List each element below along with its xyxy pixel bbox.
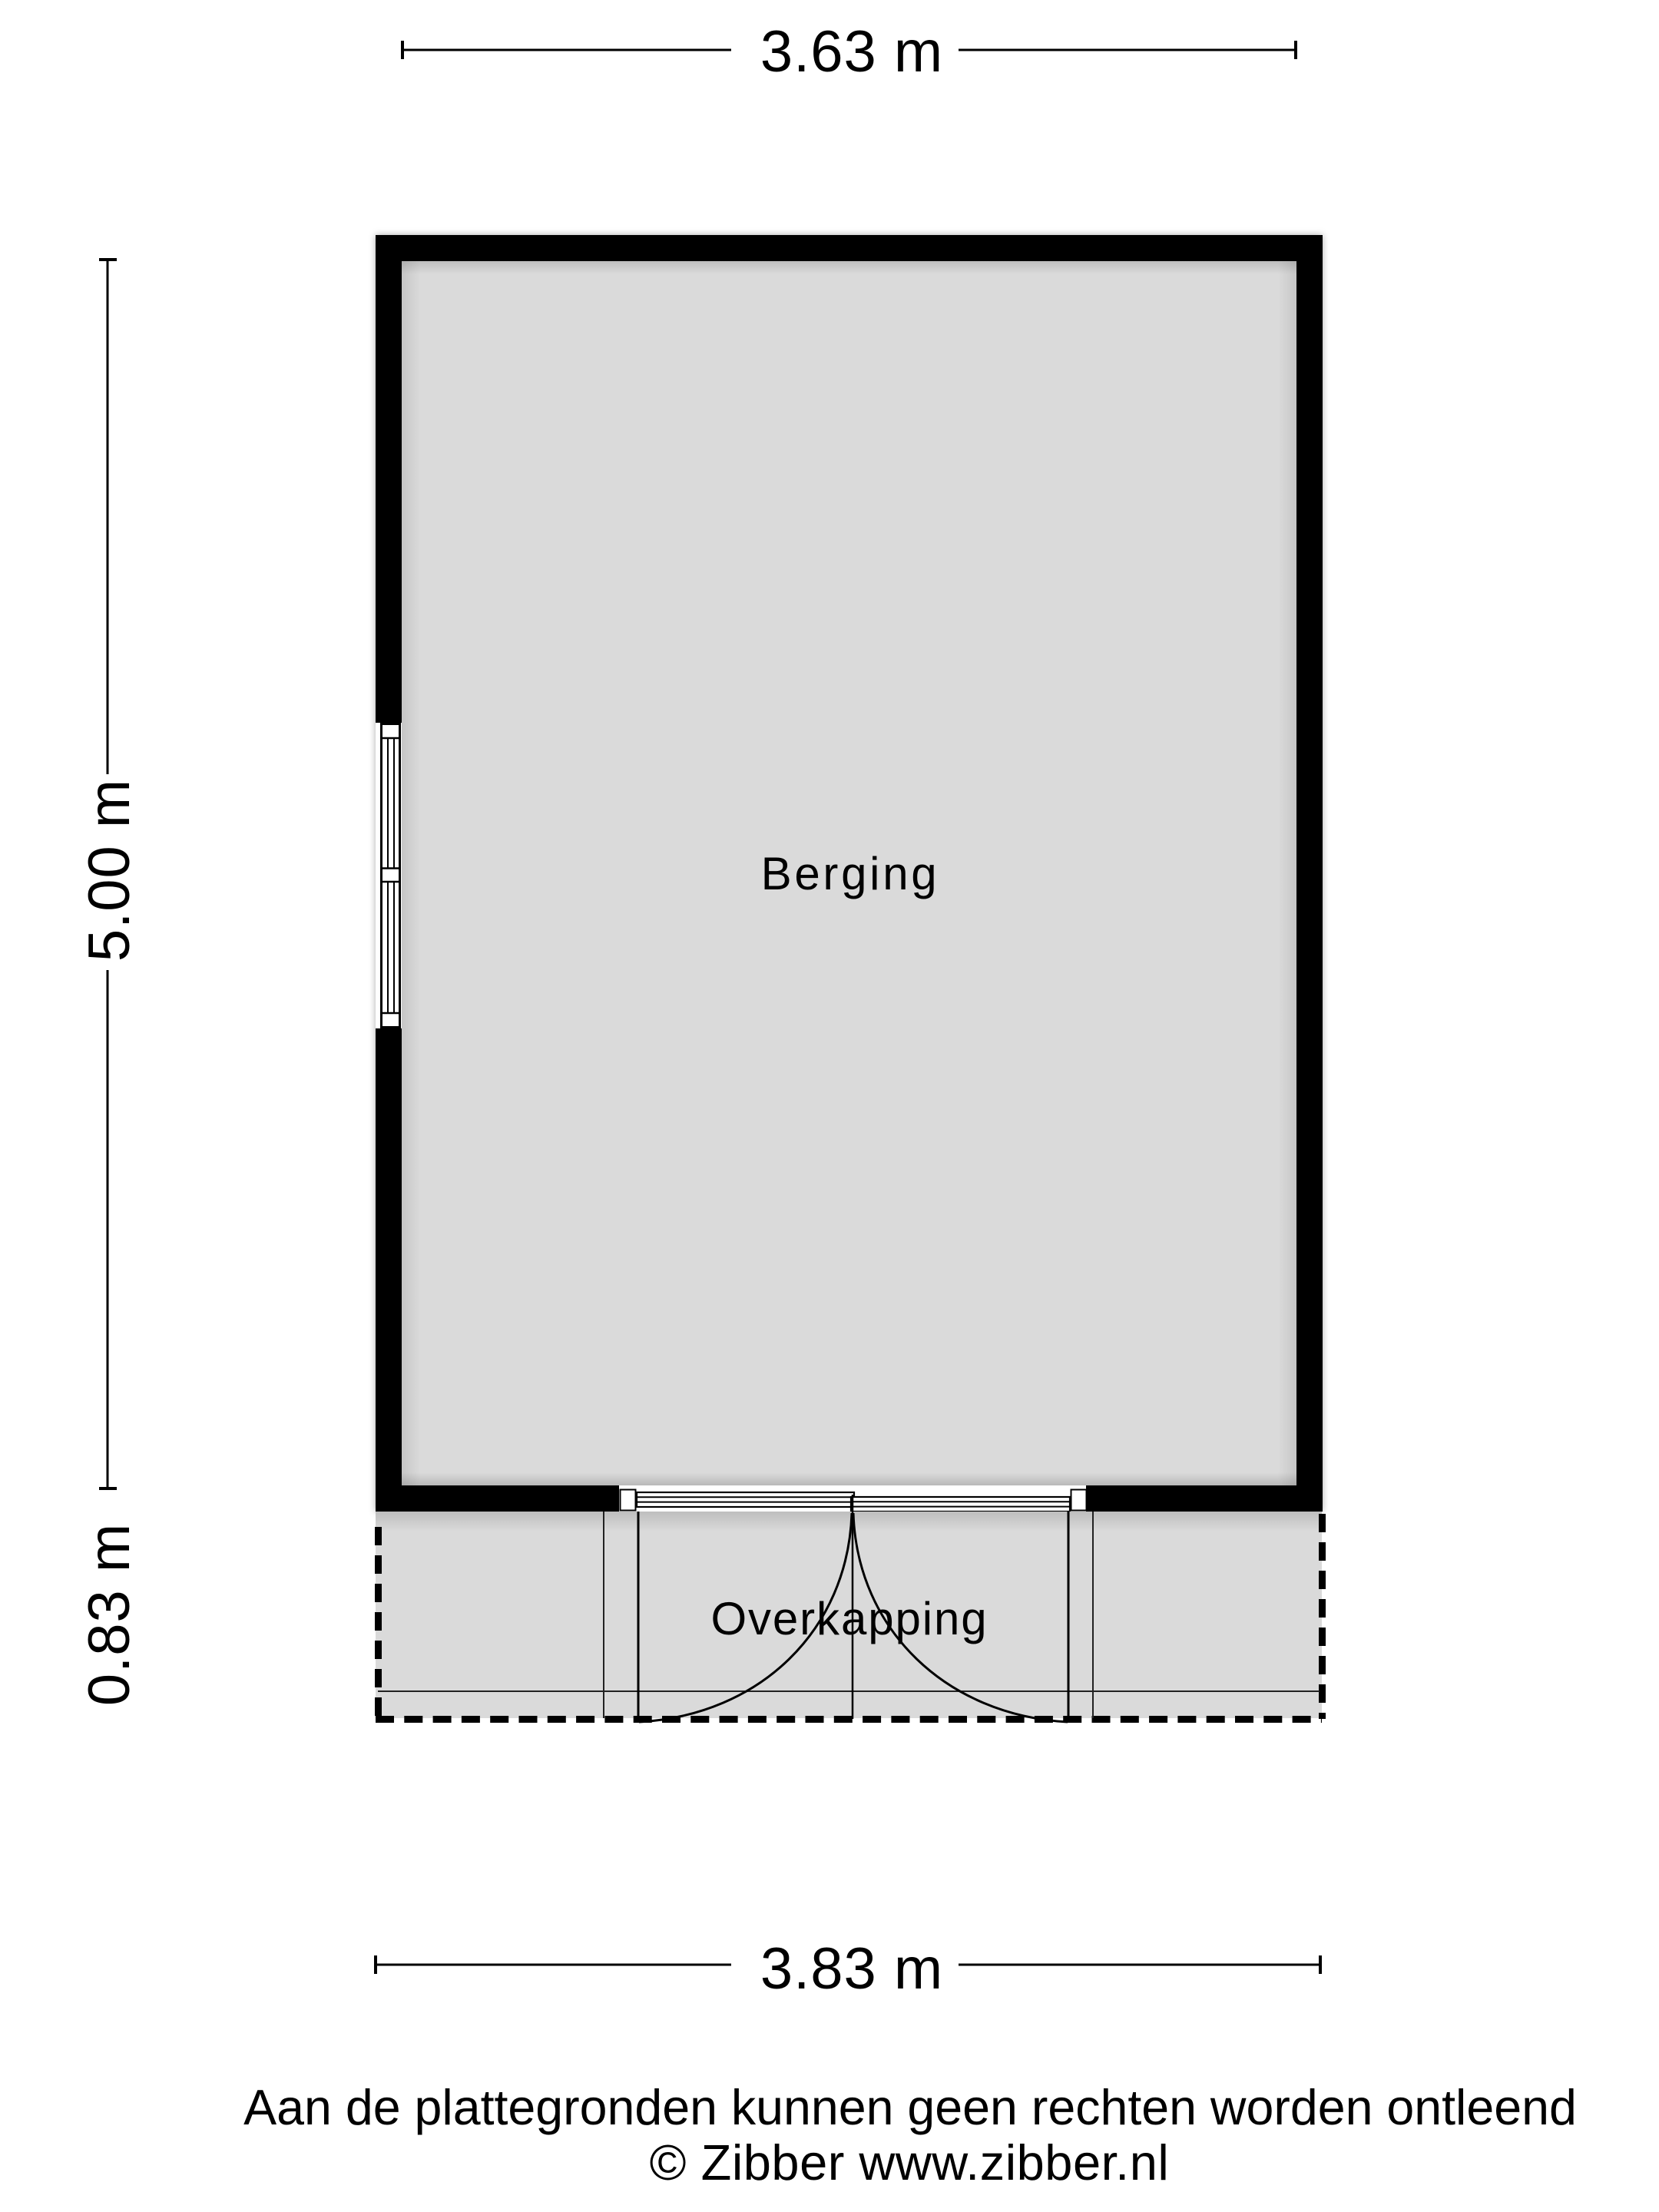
svg-text:Overkapping: Overkapping [710, 1593, 988, 1644]
svg-text:Berging: Berging [761, 848, 940, 899]
svg-text:3.83 m: 3.83 m [760, 1936, 943, 2002]
svg-text:© Zibber www.zibber.nl: © Zibber www.zibber.nl [650, 2134, 1170, 2190]
svg-text:3.63 m: 3.63 m [760, 19, 943, 84]
svg-text:5.00 m: 5.00 m [77, 779, 142, 962]
svg-text:Aan de plattegronden kunnen ge: Aan de plattegronden kunnen geen rechten… [243, 2080, 1577, 2135]
svg-text:0.83 m: 0.83 m [77, 1523, 142, 1706]
